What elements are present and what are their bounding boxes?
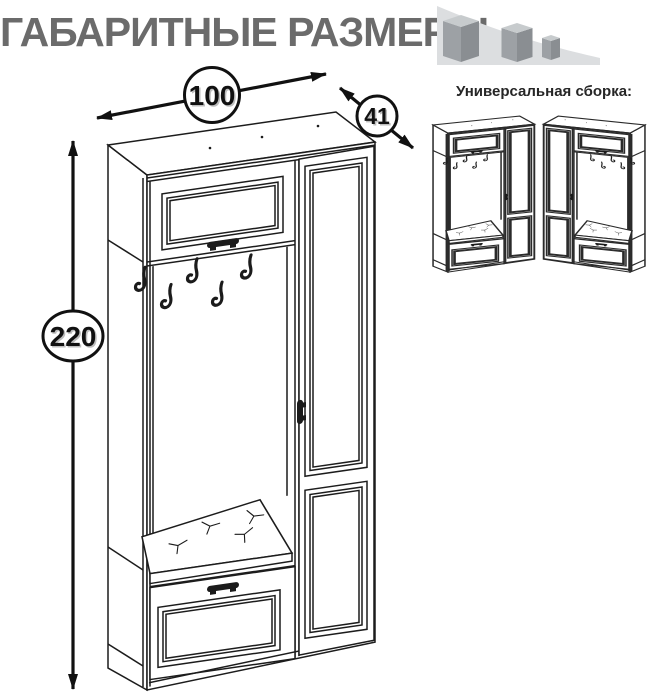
height-dimension-value: 220: [50, 321, 97, 352]
main-cabinet-drawing: [108, 112, 375, 692]
technical-drawing: 100 100 41 41 220 220: [0, 0, 651, 700]
cube-small: [542, 35, 560, 60]
cube-large: [443, 15, 479, 62]
assembly-variant-right: [544, 116, 645, 273]
size-cubes-icon: [437, 6, 600, 65]
assembly-variant-left: [433, 116, 534, 273]
depth-dimension-value: 41: [364, 103, 390, 129]
cube-medium: [502, 23, 533, 62]
width-dimension: 100 100: [97, 68, 326, 123]
page: ГАБАРИТНЫЕ РАЗМЕРЫ Универсальная сборка:: [0, 0, 651, 700]
width-dimension-value: 100: [189, 80, 236, 111]
height-dimension: 220 220: [43, 141, 103, 689]
